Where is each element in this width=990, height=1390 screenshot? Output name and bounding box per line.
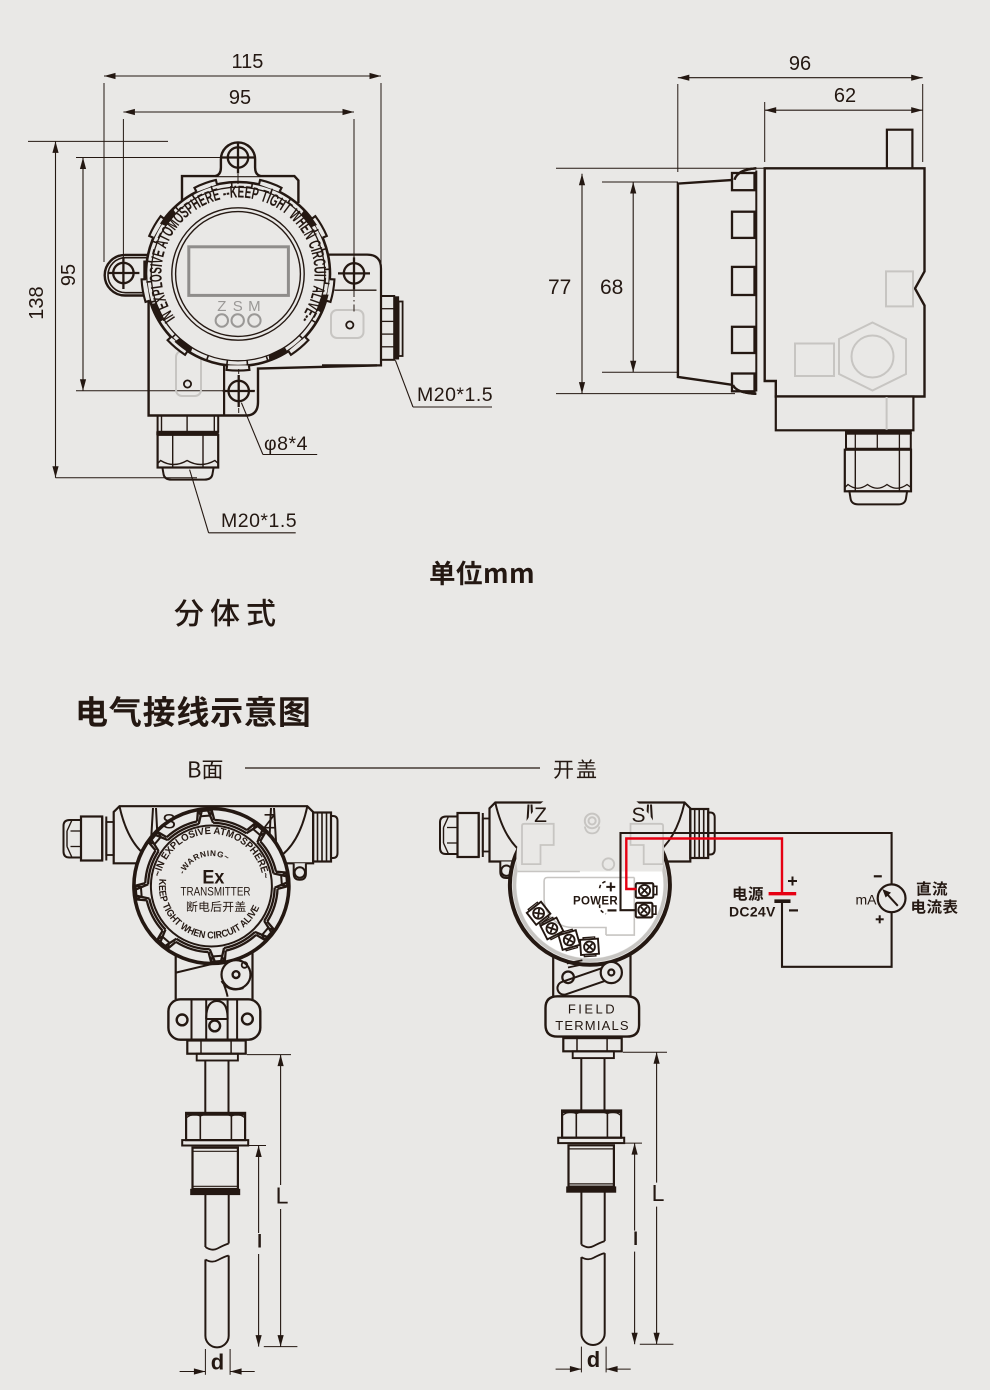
svg-text:d: d: [587, 1347, 600, 1372]
svg-text:95: 95: [229, 87, 251, 109]
svg-text:d: d: [211, 1350, 224, 1375]
svg-text:L: L: [276, 1183, 289, 1209]
svg-text:DC24V: DC24V: [729, 904, 776, 920]
svg-text:L: L: [652, 1180, 665, 1206]
svg-text:mA: mA: [856, 892, 878, 908]
svg-text:S: S: [631, 804, 645, 827]
svg-text:62: 62: [834, 85, 856, 107]
svg-text:l: l: [257, 1232, 262, 1252]
svg-text:TRANSMITTER: TRANSMITTER: [181, 885, 251, 899]
svg-text:Z: Z: [534, 804, 547, 827]
svg-text:138: 138: [26, 286, 48, 319]
svg-text:77: 77: [548, 276, 571, 299]
svg-text:Z: Z: [217, 298, 226, 315]
svg-text:l: l: [633, 1229, 638, 1249]
svg-text:Z: Z: [263, 811, 276, 834]
svg-text:95: 95: [58, 264, 80, 286]
svg-text:68: 68: [600, 276, 623, 299]
svg-text:φ8*4: φ8*4: [264, 433, 308, 455]
svg-text:POWER: POWER: [573, 895, 618, 907]
svg-text:S: S: [162, 811, 176, 834]
svg-text:S: S: [233, 298, 243, 315]
svg-text:TERMIALS: TERMIALS: [555, 1018, 630, 1033]
svg-text:M20*1.5: M20*1.5: [417, 384, 493, 406]
svg-text:FIELD: FIELD: [568, 1002, 617, 1017]
svg-text:96: 96: [789, 53, 811, 75]
svg-text:M: M: [248, 298, 261, 315]
svg-text:115: 115: [232, 51, 264, 73]
svg-text:M20*1.5: M20*1.5: [221, 510, 297, 532]
